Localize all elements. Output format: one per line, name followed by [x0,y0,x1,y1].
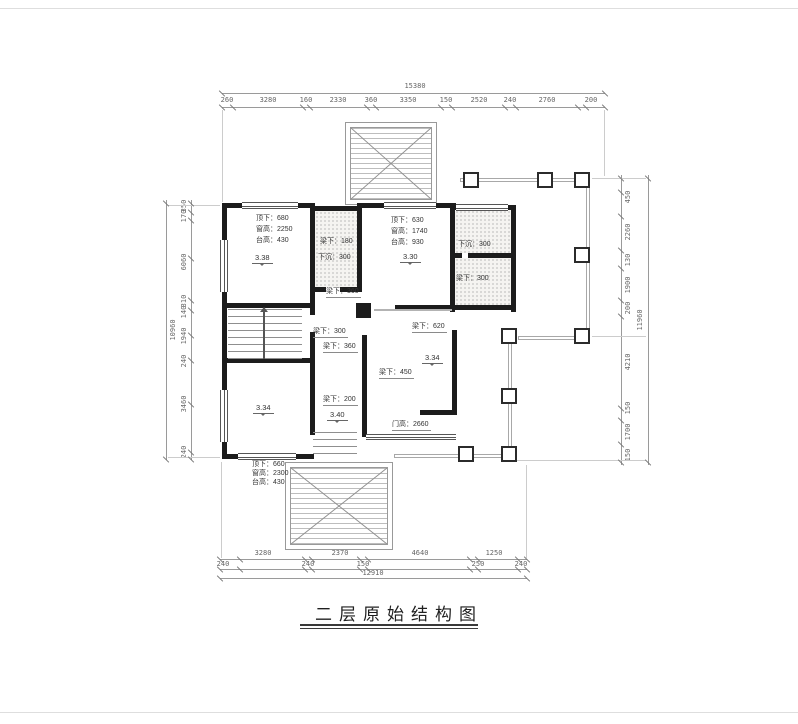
wall [357,206,362,292]
dim-text: 2760 [539,96,556,104]
room-label: 窗高：2250 [256,225,293,234]
terrace-column [574,328,590,344]
door-height-label: 门高：2660 [392,419,431,431]
wall [310,287,326,292]
dim-text-bottom-total: 12910 [362,569,383,577]
roof-top-hatch [350,127,432,200]
door-opening [366,434,456,440]
page-border-line [0,8,798,9]
terrace-rail [460,178,590,182]
dim-line [220,578,527,579]
roof-top [345,122,437,205]
wall [452,330,457,415]
window [456,204,508,211]
room-label: 台高：430 [256,236,289,245]
dim-line [222,107,605,108]
balcony-column [501,446,517,462]
wall [362,335,367,437]
title-rule [300,628,478,629]
dim-text-top-total: 15380 [404,82,425,90]
extension-line [222,110,223,202]
window [220,240,228,292]
extension-line [526,465,527,558]
beam-label: 梁下：200 [323,394,358,406]
dim-text: 2260 [624,224,632,241]
balcony-column [501,388,517,404]
window [384,202,436,209]
room-label: 台高：930 [391,238,424,247]
beam-label: 梁下：450 [379,367,414,379]
dim-text: 1940 [180,328,188,345]
wall [420,410,457,415]
wall [468,253,516,258]
extension-line [168,457,220,458]
wall [222,303,314,308]
room-label: 台高：430 [252,478,285,487]
page-border-line [0,712,798,713]
beam-label: 梁下：300 [313,326,348,338]
dim-text: 360 [365,96,378,104]
dim-text: 200 [624,302,632,315]
level-marker: 3.40 [327,410,348,421]
beam-label: 梁下：360 [323,341,358,353]
extension-line [604,110,605,176]
dim-text: 6060 [180,254,188,271]
dim-text-right-total: 11960 [636,309,644,330]
dim-text: 150 [624,402,632,415]
dim-text: 1250 [486,549,503,557]
wall [310,203,315,315]
column-square [356,303,371,318]
drawing-title: 二层原始结构图 [0,600,798,625]
dim-text: 4640 [412,549,429,557]
dim-text: 3460 [180,396,188,413]
dim-line [191,200,192,460]
dim-text: 240 [180,355,188,368]
level-marker: 3.34 [422,353,443,364]
room-label: 下沉：300 [318,253,351,262]
roof-bottom [285,462,393,550]
terrace-column [574,172,590,188]
room-label: 梁下：300 [456,274,489,283]
room-label: 顶下：680 [256,214,289,223]
stair-center-line [263,309,265,359]
dim-text: 240 [504,96,517,104]
wall [511,205,516,312]
dim-text: 150 [440,96,453,104]
dim-text: 160 [300,96,313,104]
wall [310,206,362,211]
extension-line [592,336,646,337]
room-label: 窗高：1740 [391,227,428,236]
wall [450,205,455,312]
terrace-column [537,172,553,188]
wall [310,332,315,435]
balcony-column [458,446,474,462]
floor-plan-sheet: 15380 260 3280 160 2330 360 3350 150 252… [0,0,798,724]
dim-line [648,175,649,465]
terrace-column [501,328,517,344]
window [242,202,298,209]
steps [313,432,357,456]
extension-line [516,460,646,461]
dim-text: 3350 [400,96,417,104]
terrace-column [574,247,590,263]
dim-text: 3280 [260,96,277,104]
dim-text: 260 [221,96,234,104]
dim-text: 1900 [624,277,632,294]
dim-text: 200 [585,96,598,104]
balcony-rail [394,454,512,458]
roof-ridge-lines [291,468,387,544]
dim-line [222,93,605,94]
dim-text: 1700 [624,424,632,441]
dim-text: 170 [180,210,188,223]
dim-text: 2520 [471,96,488,104]
window [238,453,296,460]
title-rule [300,624,478,626]
room-label: 顶下：630 [391,216,424,225]
stair-arrow [260,303,268,312]
dim-line [166,200,167,460]
level-marker: 3.38 [252,253,273,264]
level-marker: 3.34 [253,403,274,414]
hatch-floor-bath-left [315,211,357,287]
window [220,390,228,442]
beam-line [374,309,452,311]
dim-text: 130 [624,254,632,267]
level-marker: 3.30 [400,252,421,263]
dim-text: 2370 [332,549,349,557]
dim-text-left-total: 10960 [169,319,177,340]
wall [452,253,462,258]
terrace-column [463,172,479,188]
room-label: 梁下：180 [320,237,353,246]
dim-text: 450 [624,191,632,204]
dim-text: 3280 [255,549,272,557]
roof-ridge-lines [351,128,431,199]
beam-label: 梁下：620 [412,321,447,333]
extension-line [221,462,222,558]
beam-label: 梁下：360 [326,286,361,298]
roof-bottom-hatch [290,467,388,545]
dim-text: 4210 [624,354,632,371]
dim-text: 2330 [330,96,347,104]
stair [228,309,302,359]
room-label: 下沉：300 [458,240,491,249]
